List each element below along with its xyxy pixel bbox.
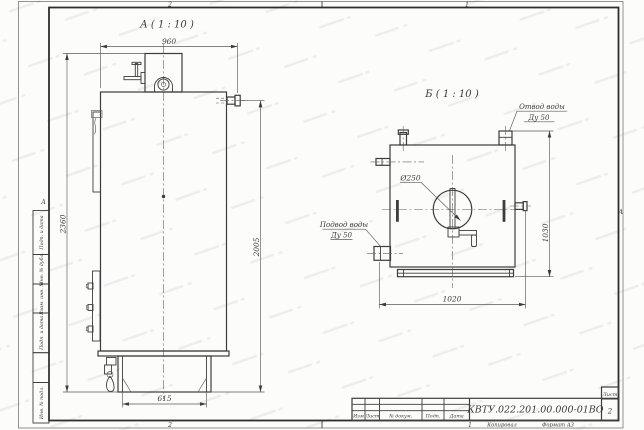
title-col-podp: Подп.	[425, 413, 441, 419]
view-a-label: А ( 1 : 10 )	[139, 20, 194, 31]
inlet-callout-line2: Ду 50	[330, 232, 352, 240]
dim-flue-label: Ø250	[399, 173, 420, 182]
margin-label-inv-podl: Инв. № подл.	[39, 386, 45, 420]
zone-letter-right: А	[618, 209, 624, 216]
outlet-callout-line1: Отвод воды	[519, 103, 565, 111]
margin-label-podp-data-2: Подп. и дата	[39, 316, 45, 351]
dim-1030-label: 1030	[541, 223, 550, 242]
inlet-callout-line1: Подвод воды	[319, 221, 368, 229]
zone-top-left: 2	[167, 2, 172, 9]
dim-615-label: 615	[157, 394, 171, 403]
footer-format: Формат А3	[542, 422, 575, 428]
title-col-list: Лист	[364, 413, 380, 419]
drawing-sheet: 2 1 2 1 А А Подп. и дата Инв. № дубл. Вз…	[0, 0, 644, 430]
margin-label-podp-data-1: Подп. и дата	[39, 215, 45, 250]
left-tick-bar	[396, 200, 399, 222]
dim-960-label: 960	[162, 37, 176, 46]
watermark-layer	[0, 0, 644, 430]
outlet-callout-line2: Ду 50	[528, 114, 550, 122]
sheet-number: 2	[607, 408, 613, 416]
zone-top-right: 1	[465, 2, 469, 9]
dim-2360-label: 2360	[59, 214, 68, 234]
zone-bottom-left: 2	[167, 422, 172, 429]
zone-letter-left: А	[40, 199, 46, 206]
title-col-izm: Изм	[352, 413, 364, 419]
margin-label-vzam-inv: Взам. инв. №	[39, 282, 45, 316]
center-mark-dot	[162, 195, 165, 198]
dim-2005-label: 2005	[252, 237, 261, 257]
sheet-label: Лист	[602, 392, 618, 398]
right-tick-bar	[503, 200, 506, 222]
engineering-drawing: 2 1 2 1 А А Подп. и дата Инв. № дубл. Вз…	[0, 0, 644, 430]
footer-copied: Копировал	[486, 422, 517, 428]
view-b-label: Б ( 1 : 10 )	[424, 89, 479, 100]
title-col-data: Дата	[449, 413, 464, 419]
zone-bottom-right: 1	[468, 422, 472, 429]
title-col-docnum: № докум.	[388, 413, 413, 419]
dim-1020-label: 1020	[443, 294, 462, 303]
document-number: КВТУ.022.201.00.000-01ВО	[466, 405, 603, 416]
margin-label-inv-dubl: Инв. № дубл.	[38, 252, 45, 286]
